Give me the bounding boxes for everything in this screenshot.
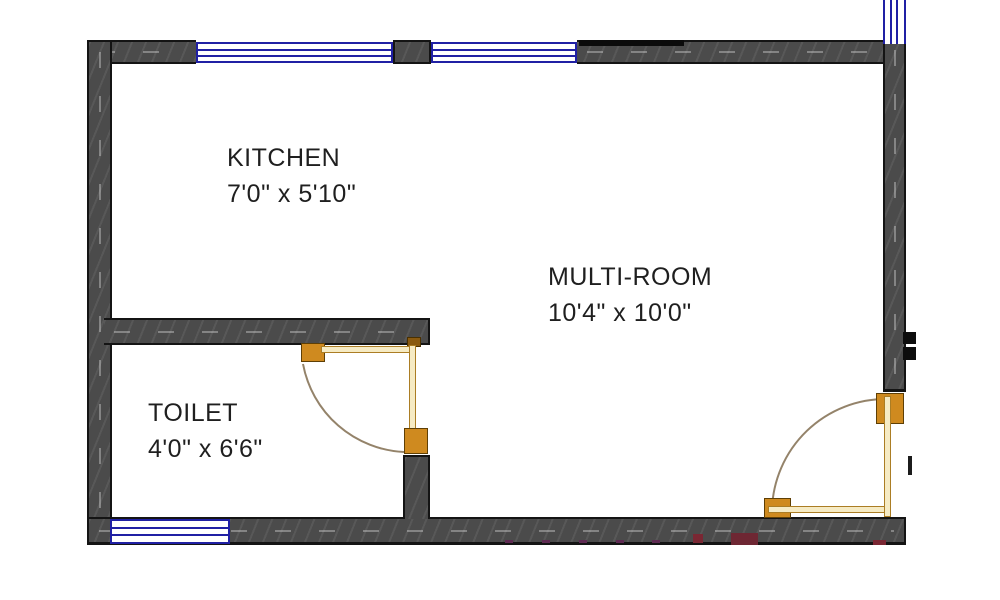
window-glass-line — [896, 0, 898, 44]
window-glass-line — [433, 49, 575, 51]
entry-door-swing-arc — [772, 399, 886, 509]
room-name: TOILET — [148, 395, 263, 431]
window-right-vertical — [883, 0, 906, 44]
wall-toilet-north — [104, 318, 430, 345]
window-glass-line — [198, 55, 391, 57]
room-dimensions: 10'4" x 10'0" — [548, 295, 712, 331]
window-top-2 — [431, 42, 577, 63]
toilet-door-hinge-block — [404, 428, 428, 454]
window-glass-line — [890, 0, 892, 44]
red-mark — [652, 540, 660, 543]
red-mark — [505, 540, 513, 543]
red-mark — [579, 540, 587, 543]
kitchen-label: KITCHEN 7'0" x 5'10" — [227, 140, 356, 212]
red-mark — [693, 534, 703, 543]
toilet-door-leaf-open — [321, 346, 414, 353]
red-mark — [616, 540, 624, 543]
wall-toilet-east-stub — [403, 455, 430, 519]
room-name: KITCHEN — [227, 140, 356, 176]
floor-plan: KITCHEN 7'0" x 5'10" MULTI-ROOM 10'4" x … — [0, 0, 1000, 600]
multi-room-label: MULTI-ROOM 10'4" x 10'0" — [548, 259, 712, 331]
red-mark — [873, 540, 886, 545]
window-bottom — [110, 519, 230, 544]
wall-centerline — [114, 331, 418, 333]
window-glass-line — [112, 534, 228, 536]
wall-top-black-cap — [579, 40, 684, 46]
wall-centerline — [99, 51, 186, 53]
wall-top-pier — [393, 40, 431, 64]
wall-tick-mark — [908, 456, 912, 475]
entry-door-leaf — [884, 396, 891, 517]
room-dimensions: 7'0" x 5'10" — [227, 176, 356, 212]
wall-centerline — [587, 51, 894, 53]
toilet-door-swing-arc — [303, 364, 404, 452]
toilet-label: TOILET 4'0" x 6'6" — [148, 395, 263, 467]
wall-notch-lower — [903, 347, 916, 360]
entry-door-leaf-open — [768, 506, 886, 513]
wall-centerline — [99, 52, 101, 532]
window-glass-line — [198, 49, 391, 51]
wall-left — [87, 40, 112, 545]
red-mark — [731, 533, 758, 545]
wall-notch-upper — [903, 332, 916, 344]
window-top-1 — [196, 42, 393, 63]
wall-centerline — [894, 50, 896, 379]
red-mark — [542, 540, 550, 543]
window-glass-line — [433, 55, 575, 57]
room-dimensions: 4'0" x 6'6" — [148, 431, 263, 467]
room-name: MULTI-ROOM — [548, 259, 712, 295]
window-glass-line — [112, 527, 228, 529]
